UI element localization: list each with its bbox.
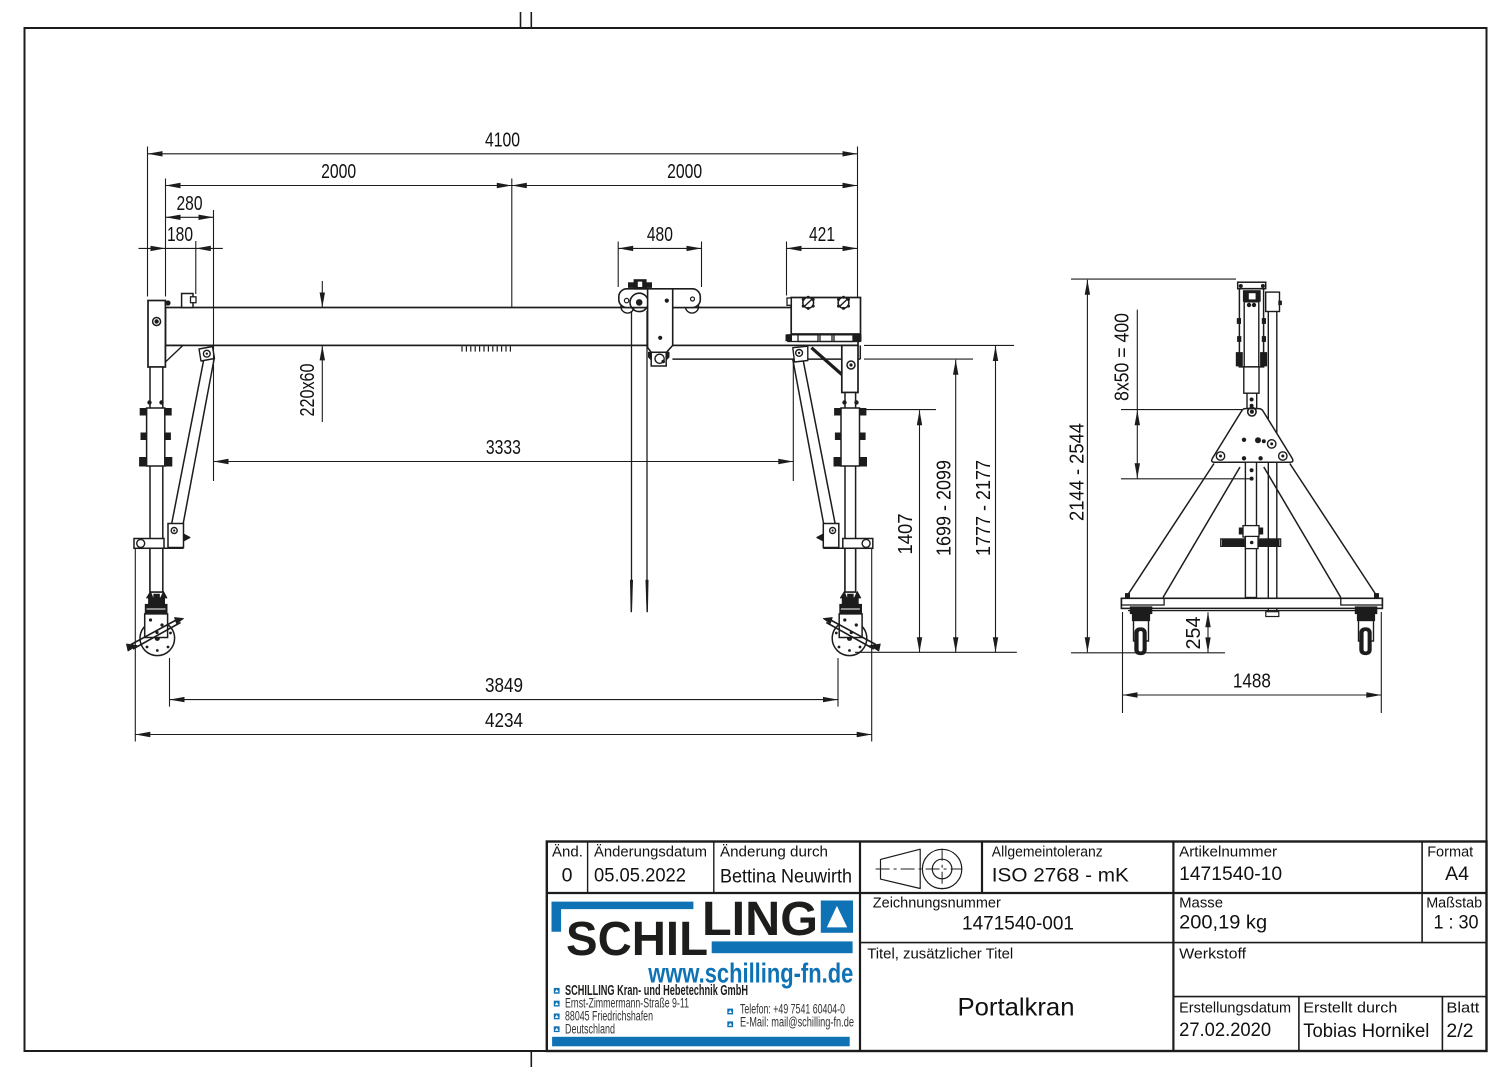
svg-text:Titel, zusätzlicher Titel: Titel, zusätzlicher Titel bbox=[867, 946, 1013, 963]
svg-text:Allgemeintoleranz: Allgemeintoleranz bbox=[992, 844, 1103, 861]
svg-text:Änd.: Änd. bbox=[552, 844, 583, 861]
svg-text:Portalkran: Portalkran bbox=[958, 994, 1075, 1022]
svg-text:220x60: 220x60 bbox=[297, 364, 319, 417]
svg-text:1488: 1488 bbox=[1233, 671, 1271, 693]
svg-text:ISO 2768 - mK: ISO 2768 - mK bbox=[992, 865, 1129, 887]
svg-text:Änderung durch: Änderung durch bbox=[720, 844, 828, 861]
svg-text:Bettina Neuwirth: Bettina Neuwirth bbox=[720, 866, 852, 888]
svg-text:Maßstab: Maßstab bbox=[1426, 895, 1482, 912]
svg-text:Erstellt durch: Erstellt durch bbox=[1303, 1000, 1397, 1017]
svg-text:280: 280 bbox=[177, 193, 203, 215]
svg-text:1777 - 2177: 1777 - 2177 bbox=[973, 460, 995, 556]
svg-text:2144 - 2544: 2144 - 2544 bbox=[1067, 423, 1089, 521]
svg-text:A4: A4 bbox=[1445, 863, 1469, 885]
svg-text:4100: 4100 bbox=[485, 129, 520, 151]
svg-text:Tobias Hornikel: Tobias Hornikel bbox=[1303, 1020, 1429, 1042]
svg-text:2/2: 2/2 bbox=[1446, 1020, 1473, 1042]
svg-text:Erstellungsdatum: Erstellungsdatum bbox=[1179, 1000, 1291, 1017]
svg-text:200,19 kg: 200,19 kg bbox=[1179, 912, 1267, 934]
svg-text:254: 254 bbox=[1183, 617, 1205, 650]
svg-text:Blatt: Blatt bbox=[1446, 1000, 1480, 1017]
svg-text:1471540-001: 1471540-001 bbox=[962, 913, 1074, 935]
svg-text:E-Mail: mail@schilling-fn.de: E-Mail: mail@schilling-fn.de bbox=[740, 1015, 854, 1030]
svg-text:Deutschland: Deutschland bbox=[565, 1021, 615, 1036]
svg-text:Format: Format bbox=[1427, 844, 1474, 861]
svg-text:05.05.2022: 05.05.2022 bbox=[594, 865, 686, 887]
svg-text:1 : 30: 1 : 30 bbox=[1434, 912, 1479, 934]
svg-text:8x50 = 400: 8x50 = 400 bbox=[1112, 313, 1134, 401]
svg-text:421: 421 bbox=[809, 224, 835, 246]
svg-text:27.02.2020: 27.02.2020 bbox=[1179, 1019, 1271, 1041]
svg-text:Artikelnummer: Artikelnummer bbox=[1179, 844, 1277, 861]
svg-text:LING: LING bbox=[702, 893, 818, 946]
svg-text:2000: 2000 bbox=[667, 161, 702, 183]
svg-text:2000: 2000 bbox=[321, 161, 356, 183]
svg-text:480: 480 bbox=[647, 224, 673, 246]
svg-text:Werkstoff: Werkstoff bbox=[1179, 946, 1247, 963]
svg-text:0: 0 bbox=[562, 865, 573, 887]
svg-text:3333: 3333 bbox=[486, 437, 521, 459]
svg-text:Änderungsdatum: Änderungsdatum bbox=[594, 844, 707, 861]
svg-text:1699 - 2099: 1699 - 2099 bbox=[934, 460, 956, 556]
svg-text:Masse: Masse bbox=[1179, 895, 1223, 912]
svg-text:Zeichnungsnummer: Zeichnungsnummer bbox=[873, 895, 1001, 912]
svg-text:180: 180 bbox=[167, 224, 193, 246]
svg-text:1471540-10: 1471540-10 bbox=[1179, 863, 1282, 885]
svg-text:4234: 4234 bbox=[485, 710, 523, 732]
svg-text:1407: 1407 bbox=[895, 514, 917, 555]
svg-text:3849: 3849 bbox=[485, 675, 523, 697]
